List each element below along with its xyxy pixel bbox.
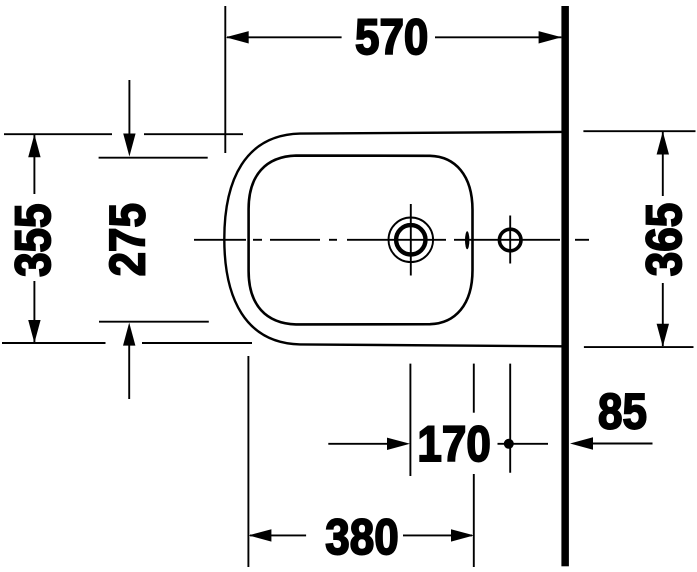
- svg-text:380: 380: [325, 508, 398, 564]
- svg-text:170: 170: [417, 415, 490, 471]
- svg-text:355: 355: [4, 204, 60, 277]
- svg-text:570: 570: [355, 8, 428, 64]
- svg-text:365: 365: [635, 203, 691, 276]
- svg-text:275: 275: [99, 203, 155, 276]
- svg-text:85: 85: [598, 383, 647, 439]
